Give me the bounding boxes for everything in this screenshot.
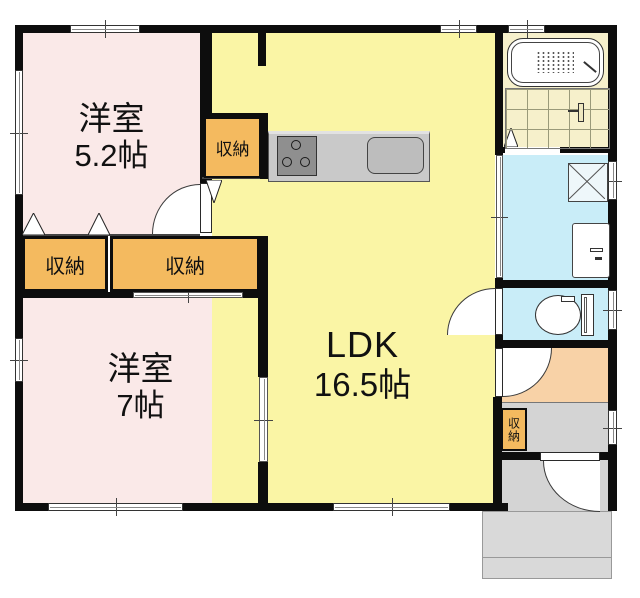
folding-door-marker <box>206 180 222 203</box>
folding-door-marker <box>22 213 45 235</box>
wall <box>600 452 617 460</box>
closet-label: 収納 <box>216 135 250 160</box>
closet-label: 収納 <box>45 250 85 279</box>
closet-entry: 収納 <box>501 408 527 451</box>
sliding-door <box>496 155 503 278</box>
sliding-door <box>133 292 243 298</box>
window <box>608 290 617 330</box>
bathroom-tile-floor <box>505 88 610 149</box>
washing-machine-pan <box>568 163 608 202</box>
kitchen-sink <box>367 137 424 174</box>
room-label-western-5-2: 洋室 5.2帖 <box>23 92 200 182</box>
wall <box>258 33 266 66</box>
room-size: 5.2帖 <box>74 138 148 174</box>
window <box>508 25 545 33</box>
wall <box>258 462 268 511</box>
window <box>440 25 477 33</box>
entrance-door <box>540 452 600 461</box>
faucet-icon <box>590 248 603 252</box>
toilet-tank <box>581 294 594 336</box>
room-label-western-7: 洋室 7帖 <box>23 342 258 432</box>
hallway-door <box>495 348 503 397</box>
toilet <box>535 293 597 338</box>
window <box>70 25 140 33</box>
bathtub <box>507 38 604 87</box>
gas-stove <box>277 136 317 176</box>
window <box>333 503 450 511</box>
wall <box>502 340 617 348</box>
room-name: 洋室 <box>79 100 145 138</box>
window <box>608 410 617 445</box>
closet-left: 収納 <box>22 236 108 292</box>
burner-icon <box>291 140 301 150</box>
room-name: LDK <box>326 324 399 365</box>
entrance-porch <box>482 511 612 559</box>
wall <box>260 113 268 179</box>
closet-upper: 収納 <box>204 117 261 178</box>
toilet-door <box>495 288 503 335</box>
room-size: 7帖 <box>116 388 164 424</box>
wall <box>495 452 540 460</box>
window <box>608 161 617 200</box>
folding-door-marker <box>88 213 110 235</box>
shower-fixture-icon <box>578 103 584 122</box>
burner-icon <box>300 157 310 167</box>
floor-boundary-line <box>502 402 608 403</box>
shower-fixture-icon <box>568 110 578 112</box>
wall <box>495 147 505 153</box>
floor-plan: 収納 収納 収納 収納 洋室 5.2帖 洋室 7 <box>0 0 640 598</box>
room-size: 16.5帖 <box>314 366 411 404</box>
room-label-ldk: LDK 16.5帖 <box>255 320 470 408</box>
window <box>48 503 183 511</box>
window <box>15 70 23 195</box>
bathtub-texture <box>536 51 574 73</box>
entrance-step <box>482 557 612 579</box>
wall <box>15 292 133 298</box>
closet-right: 収納 <box>110 236 260 292</box>
washbasin <box>572 223 610 278</box>
wall <box>495 25 503 155</box>
closet-label: 収納 <box>506 417 523 443</box>
toilet-buttons <box>561 296 575 302</box>
wall <box>502 280 617 288</box>
window <box>15 338 23 382</box>
closet-label: 収納 <box>165 250 205 279</box>
burner-icon <box>282 157 292 167</box>
faucet-icon <box>595 257 602 260</box>
room-name: 洋室 <box>108 350 174 388</box>
